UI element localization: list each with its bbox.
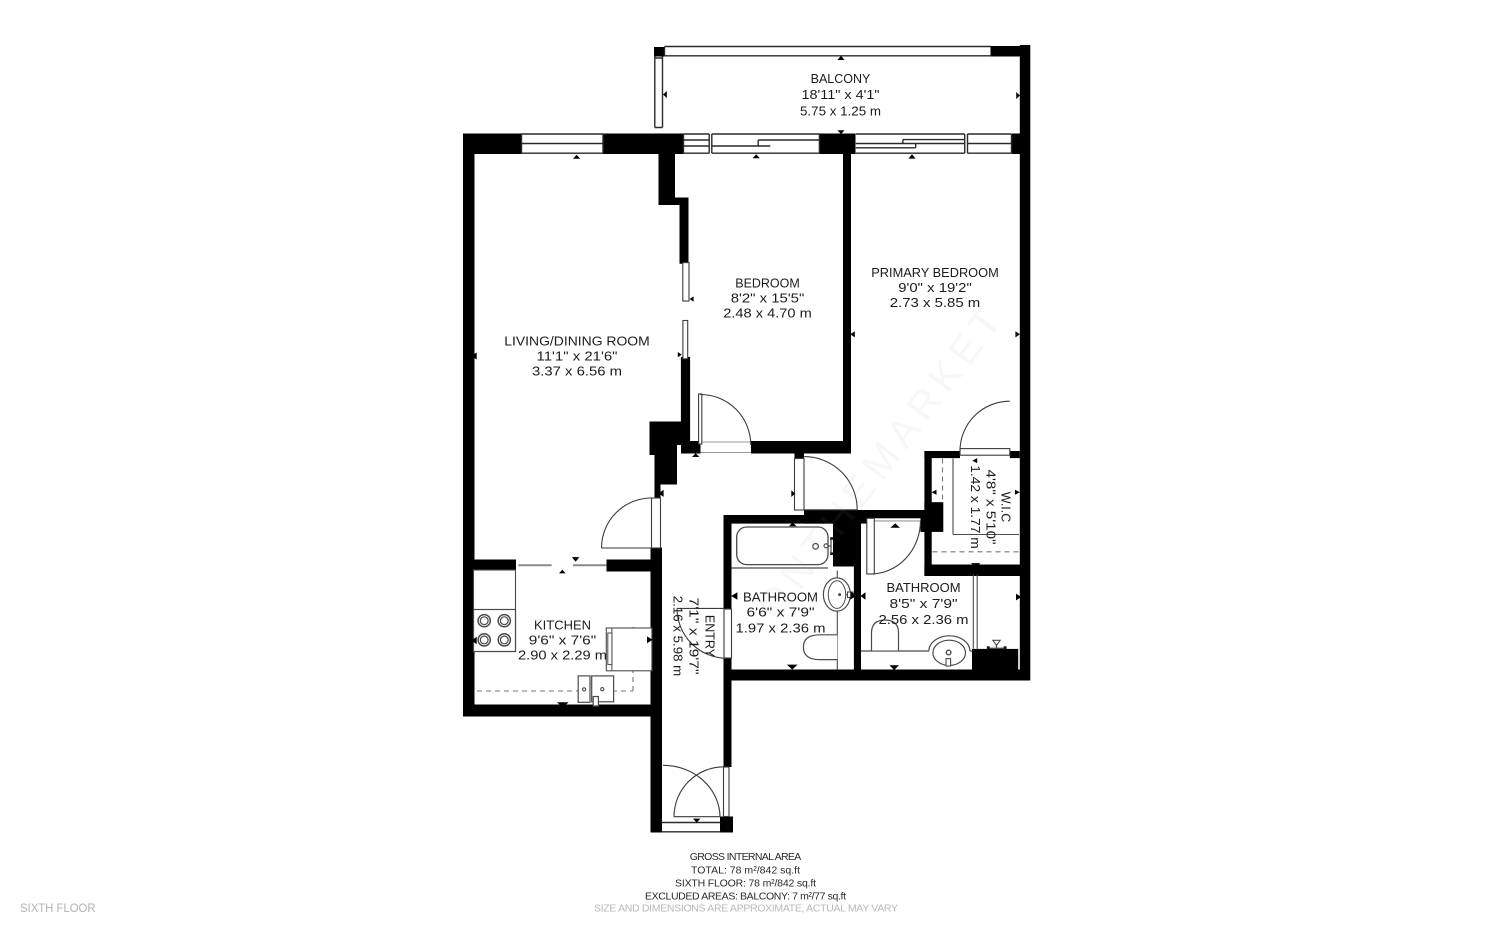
svg-text:SIZE AND DIMENSIONS ARE APPROX: SIZE AND DIMENSIONS ARE APPROXIMATE, ACT… bbox=[594, 903, 898, 915]
svg-text:LIVING/DINING ROOM: LIVING/DINING ROOM bbox=[504, 335, 650, 349]
svg-text:2.48 x 4.70 m: 2.48 x 4.70 m bbox=[723, 307, 812, 321]
svg-text:BATHROOM: BATHROOM bbox=[887, 581, 961, 595]
svg-text:BATHROOM: BATHROOM bbox=[743, 591, 818, 605]
svg-text:11'1" x 21'6": 11'1" x 21'6" bbox=[537, 350, 618, 364]
svg-text:8'2" x 15'5": 8'2" x 15'5" bbox=[731, 292, 805, 306]
svg-text:SIXTH FLOOR: 78 m²/842 sq.ft: SIXTH FLOOR: 78 m²/842 sq.ft bbox=[675, 878, 816, 890]
svg-text:2.90 x 2.29 m: 2.90 x 2.29 m bbox=[518, 649, 607, 663]
svg-text:1.97 x 2.36 m: 1.97 x 2.36 m bbox=[736, 622, 826, 636]
svg-text:4'8" x 5'10": 4'8" x 5'10" bbox=[984, 470, 998, 545]
svg-text:8'5" x 7'9": 8'5" x 7'9" bbox=[890, 597, 958, 611]
svg-text:W.I.C: W.I.C bbox=[999, 492, 1013, 523]
svg-text:2.56 x 2.36 m: 2.56 x 2.36 m bbox=[879, 613, 969, 627]
svg-text:5.75 x 1.25 m: 5.75 x 1.25 m bbox=[800, 105, 881, 119]
svg-text:EXCLUDED AREAS: BALCONY: 7 m²/: EXCLUDED AREAS: BALCONY: 7 m²/77 sq.ft bbox=[645, 891, 846, 903]
svg-text:BEDROOM: BEDROOM bbox=[735, 277, 800, 291]
svg-text:SIXTH FLOOR: SIXTH FLOOR bbox=[20, 901, 96, 915]
svg-text:GROSS INTERNAL AREA: GROSS INTERNAL AREA bbox=[690, 851, 802, 863]
svg-text:2.73 x 5.85 m: 2.73 x 5.85 m bbox=[890, 296, 981, 310]
svg-text:9'6" x 7'6": 9'6" x 7'6" bbox=[529, 634, 597, 648]
svg-text:TOTAL: 78 m²/842 sq.ft: TOTAL: 78 m²/842 sq.ft bbox=[691, 865, 800, 877]
svg-text:6'6" x 7'9": 6'6" x 7'9" bbox=[747, 606, 815, 620]
svg-text:2.16 x 5.98 m: 2.16 x 5.98 m bbox=[671, 596, 685, 677]
svg-text:9'0" x 19'2": 9'0" x 19'2" bbox=[898, 281, 972, 295]
svg-text:18'11" x 4'1": 18'11" x 4'1" bbox=[802, 88, 880, 102]
svg-text:PRIMARY BEDROOM: PRIMARY BEDROOM bbox=[871, 266, 999, 280]
svg-text:1.42 x 1.77 m: 1.42 x 1.77 m bbox=[968, 465, 982, 549]
svg-text:3.37 x 6.56 m: 3.37 x 6.56 m bbox=[532, 365, 622, 379]
svg-text:BALCONY: BALCONY bbox=[811, 72, 871, 86]
svg-text:KITCHEN: KITCHEN bbox=[534, 619, 591, 633]
svg-text:7'1" x 19'7": 7'1" x 19'7" bbox=[687, 598, 701, 675]
svg-text:ENTRY: ENTRY bbox=[703, 615, 717, 658]
